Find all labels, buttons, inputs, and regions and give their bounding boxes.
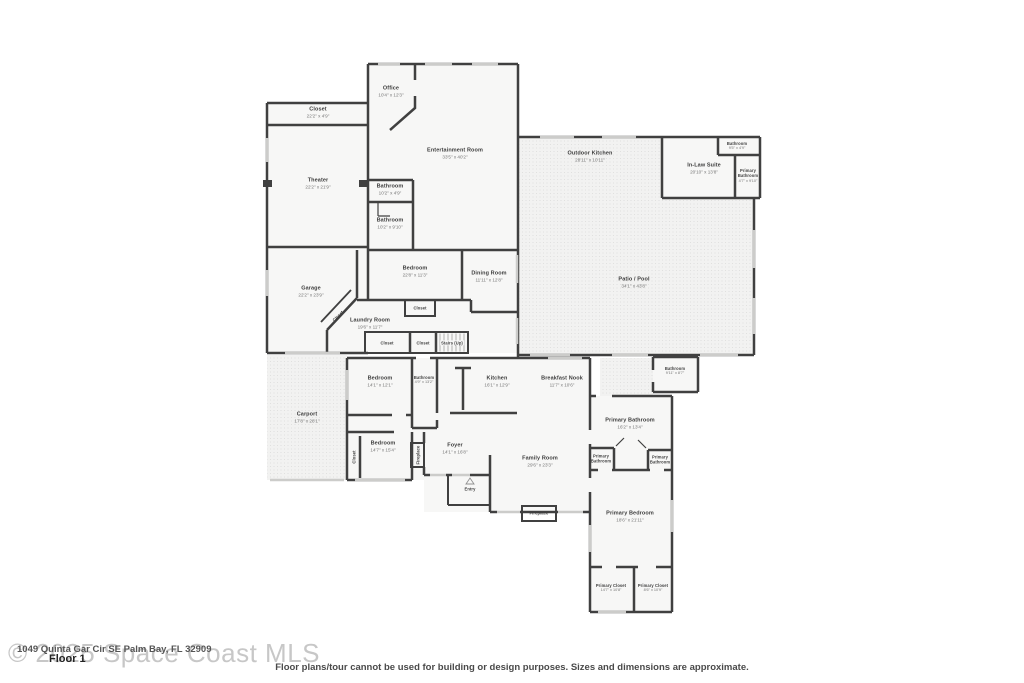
- room-dims: 10'4" x 12'3": [378, 93, 403, 99]
- disclaimer-text: Floor plans/tour cannot be used for buil…: [0, 662, 1024, 673]
- room-label-bedroom-mid: Bedroom22'8" x 11'3": [403, 265, 428, 278]
- room-label-outdoor-kitchen: Outdoor Kitchen28'11" x 10'11": [568, 150, 613, 163]
- room-label-breakfast-nook: Breakfast Nook11'7" x 10'6": [541, 375, 583, 388]
- room-dims: 9'11" x 8'7": [665, 371, 685, 376]
- room-label-closet-hall-b: Closet: [416, 340, 429, 345]
- room-name: Primary Bathroom: [605, 417, 655, 424]
- room-dims: 8'6" x 10'9": [638, 588, 668, 593]
- room-name: Primary Bedroom: [606, 510, 654, 517]
- room-name: Bathroom: [377, 217, 404, 224]
- room-name: Outdoor Kitchen: [568, 150, 613, 157]
- room-dims: 9'5" x 4'9": [727, 146, 747, 151]
- room-name: Fireplace: [415, 446, 420, 465]
- room-label-fireplace-family: Fireplace: [530, 510, 549, 515]
- room-label-kitchen: Kitchen16'1" x 12'9": [484, 375, 509, 388]
- room-label-office: Office10'4" x 12'3": [378, 85, 403, 98]
- room-name: Closet: [351, 450, 356, 463]
- property-address: 1049 Quinta Gar Cir SE Palm Bay, FL 3290…: [17, 644, 212, 655]
- room-label-bedroom-nw: Bedroom14'1" x 12'1": [367, 375, 392, 388]
- room-label-stairs: Stairs (Up): [440, 340, 464, 345]
- room-name: Laundry Room: [350, 317, 390, 324]
- room-label-family-room: Family Room29'6" x 23'3": [522, 455, 558, 468]
- room-name: Closet: [416, 340, 429, 345]
- room-label-carport: Carport17'8" x 28'1": [294, 411, 319, 424]
- room-name: Kitchen: [484, 375, 509, 382]
- room-name: Primary Bathroom: [646, 455, 674, 466]
- room-name: Primary Bathroom: [587, 454, 615, 465]
- room-dims: 11'7" x 10'6": [541, 383, 583, 389]
- room-label-fireplace-foyer: Fireplace: [415, 446, 420, 465]
- room-name: Foyer: [442, 442, 467, 449]
- room-name: Fireplace: [530, 510, 549, 515]
- room-name: Entry: [465, 486, 476, 491]
- room-dims: 4'7" x 9'10": [734, 179, 762, 184]
- room-dims: 14'1" x 12'1": [367, 383, 392, 389]
- room-dims: 22'2" x 4'9": [307, 114, 330, 120]
- room-label-theater: Theater22'2" x 21'9": [305, 177, 330, 190]
- room-label-entry: Entry: [465, 486, 476, 491]
- room-label-garage: Garage22'2" x 23'9": [298, 285, 323, 298]
- room-name: Bedroom: [403, 265, 428, 272]
- room-label-closet-sw: Closet: [351, 450, 356, 463]
- room-label-primary-closet-2: Primary Closet8'6" x 10'9": [638, 583, 668, 593]
- room-label-primary-bathroom-wc1: Primary Bathroom: [587, 454, 615, 465]
- room-dims: 14'1" x 16'8": [442, 450, 467, 456]
- room-dims: 19'6" x 11'7": [350, 325, 390, 331]
- floor-label: Floor 1: [49, 653, 86, 665]
- room-dims: 22'2" x 23'9": [298, 293, 323, 299]
- room-dims: 29'6" x 23'3": [522, 463, 558, 469]
- room-label-bathroom-inlaw: Bathroom9'5" x 4'9": [727, 141, 747, 151]
- room-label-foyer: Foyer14'1" x 16'8": [442, 442, 467, 455]
- room-name: Closet: [380, 340, 393, 345]
- room-dims: 20'10" x 13'8": [687, 170, 721, 176]
- room-label-dining-room: Dining Room11'11" x 12'8": [471, 270, 506, 283]
- room-dims: 11'11" x 12'8": [471, 278, 506, 284]
- room-name: Bedroom: [367, 375, 392, 382]
- room-label-bedroom-sw: Bedroom14'7" x 15'4": [370, 440, 395, 453]
- room-label-entertainment: Entertainment Room33'5" x 40'2": [427, 147, 483, 160]
- room-dims: 14'7" x 15'4": [370, 448, 395, 454]
- room-dims: 18'6" x 21'11": [606, 518, 654, 524]
- room-label-laundry-room: Laundry Room19'6" x 11'7": [350, 317, 390, 330]
- room-name: Primary Bathroom: [734, 168, 762, 179]
- room-name: Bedroom: [370, 440, 395, 447]
- room-label-closet-top: Closet22'2" x 4'9": [307, 106, 330, 119]
- room-label-primary-bathroom: Primary Bathroom16'2" x 13'4": [605, 417, 655, 430]
- room-name: Breakfast Nook: [541, 375, 583, 382]
- room-label-bathroom-hall: Bathroom4'9" x 13'2": [410, 375, 438, 385]
- room-label-primary-bathroom-inlaw: Primary Bathroom4'7" x 9'10": [734, 168, 762, 184]
- room-label-bathroom-1: Bathroom10'2" x 4'9": [377, 183, 404, 196]
- room-name: Garage: [298, 285, 323, 292]
- room-dims: 22'2" x 21'9": [305, 185, 330, 191]
- room-name: In-Law Suite: [687, 162, 721, 169]
- room-label-closet-mid: Closet: [413, 305, 426, 310]
- room-name: Bathroom: [377, 183, 404, 190]
- room-label-primary-closet-1: Primary Closet14'7" x 10'8": [596, 583, 626, 593]
- room-dims: 33'5" x 40'2": [427, 155, 483, 161]
- room-label-primary-bedroom: Primary Bedroom18'6" x 21'11": [606, 510, 654, 523]
- room-dims: 17'8" x 28'1": [294, 419, 319, 425]
- room-name: Carport: [294, 411, 319, 418]
- floorplan-page: Office10'4" x 12'3" Closet22'2" x 4'9" T…: [0, 0, 1024, 683]
- room-name: Theater: [305, 177, 330, 184]
- room-label-bathroom-se: Bathroom9'11" x 8'7": [665, 366, 685, 376]
- room-label-inlaw-suite: In-Law Suite20'10" x 13'8": [687, 162, 721, 175]
- room-label-primary-bathroom-wc2: Primary Bathroom: [646, 455, 674, 466]
- room-name: Entertainment Room: [427, 147, 483, 154]
- room-dims: 10'2" x 4'9": [377, 191, 404, 197]
- room-name: Stairs (Up): [440, 340, 464, 345]
- room-label-patio-pool: Patio / Pool34'1" x 43'8": [618, 276, 649, 289]
- room-dims: 10'2" x 9'10": [377, 225, 404, 231]
- floorplan-canvas: [0, 0, 1024, 683]
- room-name: Family Room: [522, 455, 558, 462]
- room-label-closet-hall-a: Closet: [380, 340, 393, 345]
- room-name: Patio / Pool: [618, 276, 649, 283]
- room-dims: 22'8" x 11'3": [403, 273, 428, 279]
- room-dims: 28'11" x 10'11": [568, 158, 613, 164]
- room-dims: 14'7" x 10'8": [596, 588, 626, 593]
- room-name: Closet: [307, 106, 330, 113]
- room-name: Dining Room: [471, 270, 506, 277]
- room-dims: 34'1" x 43'8": [618, 284, 649, 290]
- room-label-bathroom-2: Bathroom10'2" x 9'10": [377, 217, 404, 230]
- room-dims: 16'1" x 12'9": [484, 383, 509, 389]
- room-dims: 16'2" x 13'4": [605, 425, 655, 431]
- room-name: Office: [378, 85, 403, 92]
- room-name: Closet: [413, 305, 426, 310]
- room-dims: 4'9" x 13'2": [410, 380, 438, 385]
